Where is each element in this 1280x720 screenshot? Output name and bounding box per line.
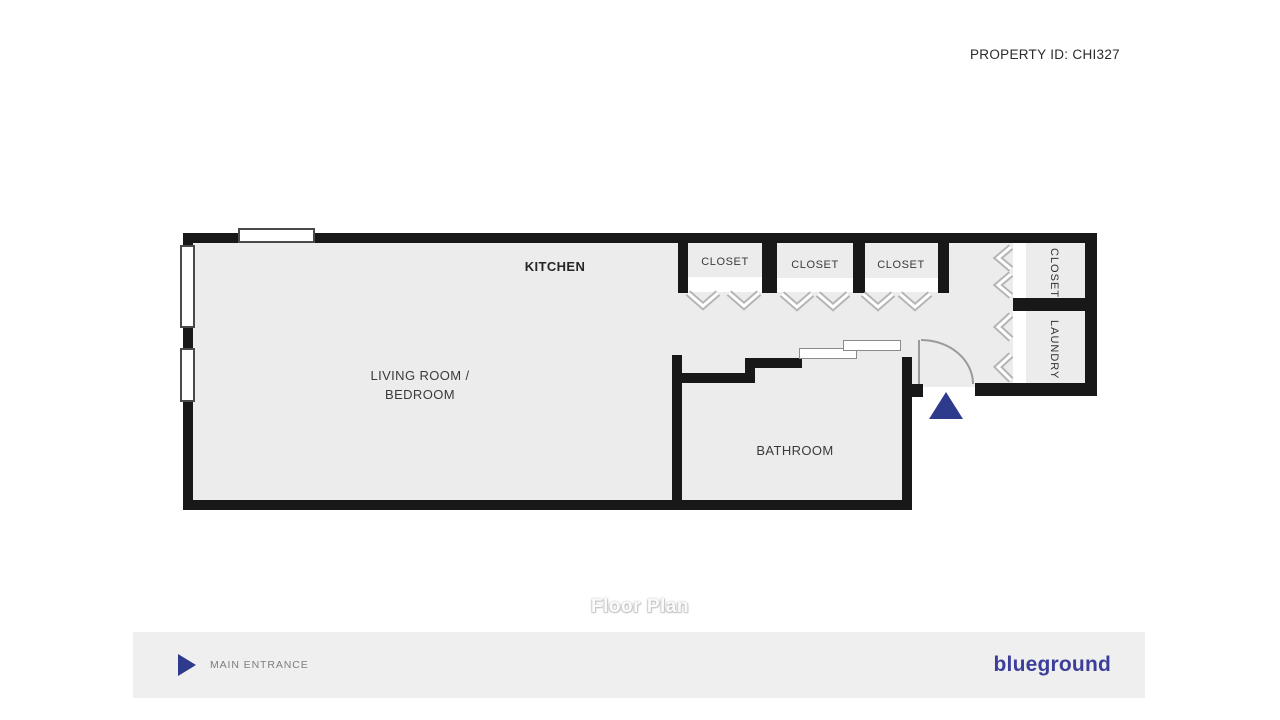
wall-top xyxy=(183,233,1097,243)
living-room-label-line2: BEDROOM xyxy=(330,385,510,404)
closet2-door-opening xyxy=(777,278,853,292)
kitchen-label: KITCHEN xyxy=(495,259,615,274)
closet1-door-opening xyxy=(688,277,762,292)
laundry-label: LAUNDRY xyxy=(1048,320,1060,379)
closet1-label: CLOSET xyxy=(685,256,765,268)
footer-bar: MAIN ENTRANCE blueground xyxy=(133,632,1145,698)
property-id-label: PROPERTY ID: CHI327 xyxy=(970,47,1120,62)
floor-plan-page: { "header": { "property_id": "PROPERTY I… xyxy=(0,0,1280,720)
closet3-door-opening xyxy=(865,278,938,292)
wall-bathroom-top-b xyxy=(745,358,802,368)
bathroom-label: BATHROOM xyxy=(735,443,855,458)
wall-bathroom-top-a xyxy=(672,373,755,383)
wall-closet1-left xyxy=(678,243,688,293)
wall-bathroom-right xyxy=(902,357,912,510)
wall-closet-laundry-divider xyxy=(1013,298,1097,311)
wall-entry-right xyxy=(975,383,1097,396)
closet2-label: CLOSET xyxy=(775,259,855,271)
sliding-door-panel-icon xyxy=(843,340,901,351)
window-top-icon xyxy=(238,228,315,243)
window-left-lower-icon xyxy=(180,348,195,402)
closet-side-door-opening xyxy=(1013,243,1026,298)
main-entrance-marker-icon xyxy=(929,392,963,419)
wall-entry-stub-left xyxy=(902,384,923,397)
entrance-play-icon xyxy=(178,654,196,676)
wall-bottom xyxy=(183,500,912,510)
living-room-label-line1: LIVING ROOM / xyxy=(330,366,510,385)
closet3-label: CLOSET xyxy=(861,259,941,271)
living-room-label: LIVING ROOM / BEDROOM xyxy=(330,366,510,404)
floor-plan-caption: Floor Plan xyxy=(0,596,1280,618)
closet-side-label: CLOSET xyxy=(1048,248,1060,298)
blueground-logo: blueground xyxy=(994,632,1111,698)
laundry-door-opening xyxy=(1013,311,1026,383)
window-left-upper-icon xyxy=(180,245,195,328)
main-entrance-legend-label: MAIN ENTRANCE xyxy=(210,659,309,671)
main-entrance-legend: MAIN ENTRANCE xyxy=(178,632,309,698)
wall-right-column xyxy=(1085,233,1097,395)
